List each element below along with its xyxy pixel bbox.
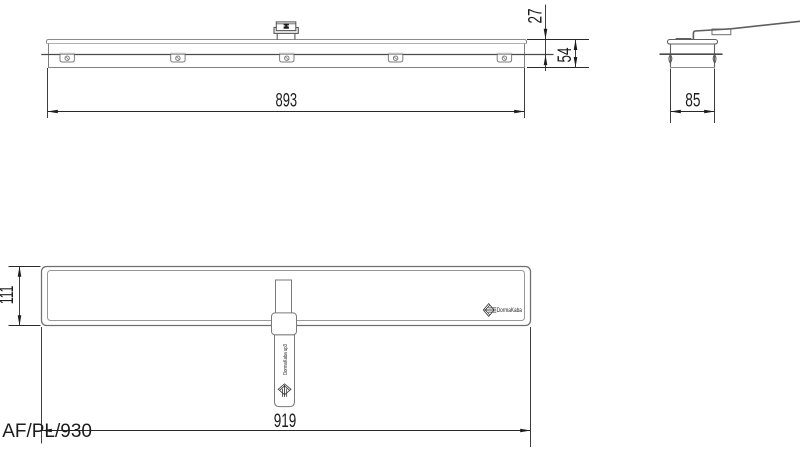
svg-text:54: 54 [555,47,576,62]
svg-text:DormaKaba: DormaKaba [497,308,523,314]
svg-text:27: 27 [526,9,547,24]
svg-text:AF/PL/930: AF/PL/930 [2,421,92,442]
svg-text:919: 919 [274,411,297,432]
svg-text:893: 893 [276,91,298,112]
svg-text:85: 85 [685,90,700,111]
svg-text:111: 111 [0,286,18,305]
svg-text:DormaKaba up3: DormaKaba up3 [283,344,289,375]
